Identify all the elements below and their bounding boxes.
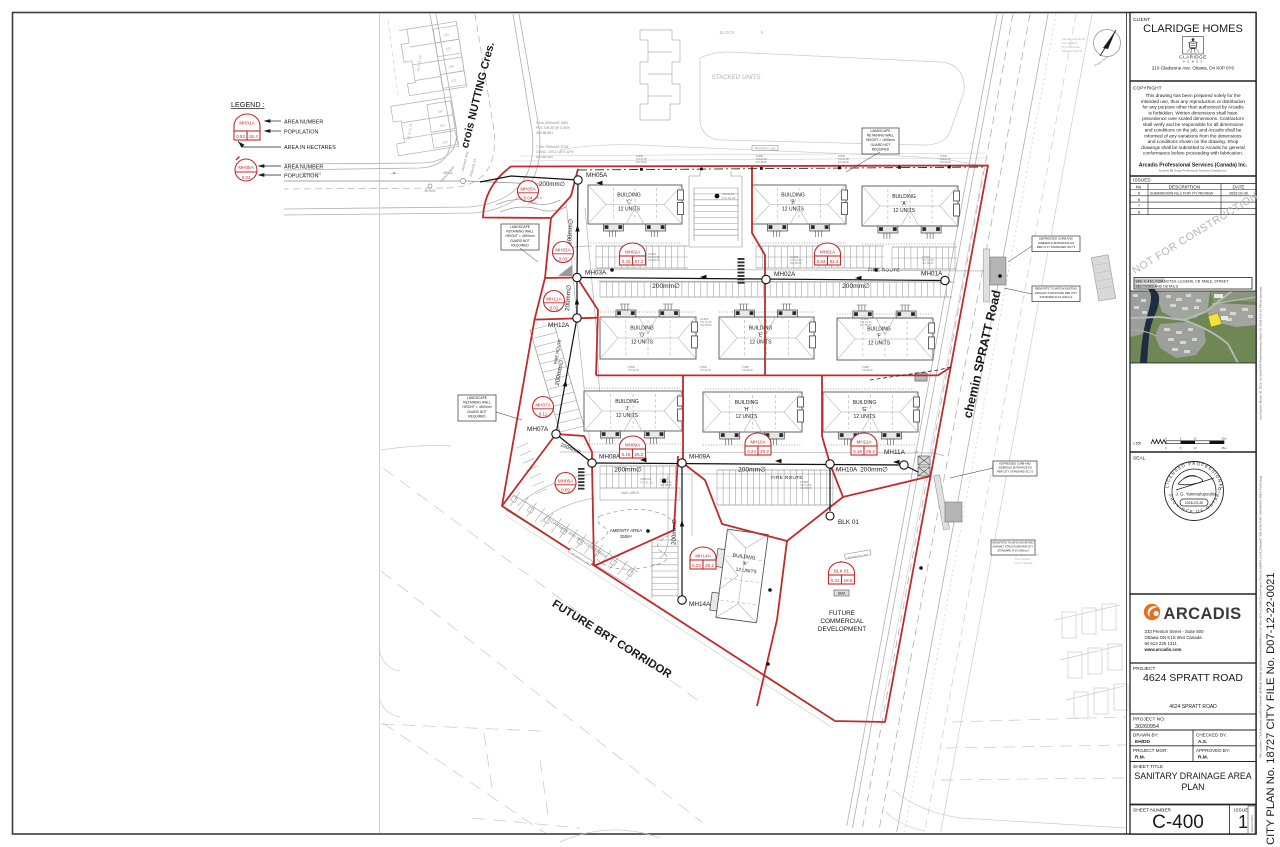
svg-text:7.4m-750mm∅ STM: 7.4m-750mm∅ STM xyxy=(536,145,568,149)
svg-text:AMENITY AREA: AMENITY AREA xyxy=(610,528,642,533)
svg-text:MH05A: MH05A xyxy=(238,165,254,170)
svg-text:informed of any variations fro: informed of any variations from the dime… xyxy=(1144,133,1242,138)
svg-text:conformance before proceeding: conformance before proceeding with fabri… xyxy=(1143,151,1243,156)
svg-text:INV 88.05: INV 88.05 xyxy=(800,486,812,490)
svg-text:'C': 'C' xyxy=(626,200,632,206)
svg-text:200mm∅: 200mm∅ xyxy=(842,283,870,290)
svg-text:12 UNITS: 12 UNITS xyxy=(631,340,654,346)
svg-text:T/G 91.15: T/G 91.15 xyxy=(640,481,653,485)
svg-text:MH11A: MH11A xyxy=(857,440,873,445)
svg-text:9.0m-200mm∅ SAN: 9.0m-200mm∅ SAN xyxy=(536,121,568,125)
svg-text:MH14A: MH14A xyxy=(689,601,711,608)
svg-text:COPYRIGHT: COPYRIGHT xyxy=(1133,86,1162,92)
svg-text:UP: UP xyxy=(914,450,918,454)
svg-text:C-400: C-400 xyxy=(1152,812,1204,833)
svg-text:200mm∅: 200mm∅ xyxy=(860,467,888,474)
svg-text:BUILDING: BUILDING xyxy=(867,327,891,333)
svg-text:250m²: 250m² xyxy=(620,534,632,539)
svg-text:AREA NUMBER: AREA NUMBER xyxy=(284,120,323,126)
svg-text:REINSTATE TO MATCH EXISTING: REINSTATE TO MATCH EXISTING xyxy=(1035,287,1077,291)
svg-text:BUILDING: BUILDING xyxy=(735,400,759,406)
svg-text:T/G 91.30: T/G 91.30 xyxy=(862,369,873,372)
svg-text:'H': 'H' xyxy=(744,407,750,413)
svg-text:0.43: 0.43 xyxy=(622,259,631,264)
svg-text:MH01A: MH01A xyxy=(921,271,943,278)
svg-text:200mm∅: 200mm∅ xyxy=(614,467,642,474)
svg-text:FIRE ROUTE: FIRE ROUTE xyxy=(868,268,900,273)
svg-text:BUILDING: BUILDING xyxy=(892,194,916,200)
svg-text:0.04: 0.04 xyxy=(524,196,533,201)
svg-text:LANDSCAPE: LANDSCAPE xyxy=(467,396,488,400)
svg-text:FIRE ROUTE: FIRE ROUTE xyxy=(771,475,803,480)
svg-text:REINSTATE TO MATCH EXISTING: REINSTATE TO MATCH EXISTING xyxy=(993,540,1034,544)
svg-text:MH07A: MH07A xyxy=(535,403,551,408)
svg-text:MH12A: MH12A xyxy=(548,322,570,329)
svg-text:10: 10 xyxy=(1194,446,1197,450)
svg-text:T/G 91.05: T/G 91.05 xyxy=(722,196,736,200)
svg-text:BUILDING: BUILDING xyxy=(749,326,773,332)
svg-text:CLARIDGE HOMES: CLARIDGE HOMES xyxy=(1143,23,1243,35)
svg-text:INV.88.891: INV.88.891 xyxy=(536,131,553,135)
svg-text:REQUIRED: REQUIRED xyxy=(872,147,890,151)
svg-text:for any purpose other than aut: for any purpose other than authorized by… xyxy=(1142,105,1244,110)
svg-text:333 Preston Street - Suite 500: 333 Preston Street - Suite 500 xyxy=(1145,629,1205,634)
svg-text:GUARD NOT: GUARD NOT xyxy=(871,143,891,147)
svg-text:153mm∅ WM: 153mm∅ WM xyxy=(300,172,321,176)
svg-text:MH09A: MH09A xyxy=(689,454,711,461)
svg-text:INV 88.05: INV 88.05 xyxy=(922,261,934,265)
svg-text:0.53: 0.53 xyxy=(236,134,245,139)
svg-text:MH10A: MH10A xyxy=(836,467,858,474)
svg-text:'A': 'A' xyxy=(901,201,906,207)
svg-text:DRAWN BY:: DRAWN BY: xyxy=(1133,733,1159,738)
svg-text:shall verify and be responsibl: shall verify and be responsible for all … xyxy=(1143,122,1244,127)
svg-text:FUTURE: FUTURE xyxy=(829,610,855,617)
svg-text:RETAINING WALL: RETAINING WALL xyxy=(867,134,895,138)
svg-text:10: 10 xyxy=(1194,436,1197,440)
svg-text:DEVELOPMENT: DEVELOPMENT xyxy=(818,626,866,633)
svg-text:CLARIDGE: CLARIDGE xyxy=(1179,55,1207,60)
svg-text:MH05A: MH05A xyxy=(586,172,608,179)
svg-text:MAIL AREA: MAIL AREA xyxy=(621,491,640,495)
svg-text:T/G 91.30: T/G 91.30 xyxy=(628,369,639,372)
svg-text:MH01A: MH01A xyxy=(820,250,836,255)
svg-text:ASPHALT STRUCTURE PER CITY: ASPHALT STRUCTURE PER CITY xyxy=(1035,291,1078,295)
svg-text:AREA IN HECTARES: AREA IN HECTARES xyxy=(284,145,336,151)
svg-text:MH08A: MH08A xyxy=(599,454,621,461)
svg-text:STACKED UNITS: STACKED UNITS xyxy=(711,74,761,81)
svg-text:12 UNITS: 12 UNITS xyxy=(616,413,639,419)
svg-text:LEGEND :: LEGEND : xyxy=(231,100,265,109)
svg-text:RETAINING WALL: RETAINING WALL xyxy=(463,401,491,405)
svg-text:BUILDING: BUILDING xyxy=(630,326,654,332)
svg-text:210 Gladstone Ave. Ottawa, On: 210 Gladstone Ave. Ottawa, On K0P 0Y6 xyxy=(1152,66,1235,71)
svg-text:PROPERTY LINE: PROPERTY LINE xyxy=(755,147,776,151)
svg-text:GUARD NOT: GUARD NOT xyxy=(510,239,530,243)
svg-text:92.4: 92.4 xyxy=(249,134,258,139)
svg-text:MH02A: MH02A xyxy=(774,271,796,278)
svg-text:MH01A: MH01A xyxy=(239,121,255,126)
svg-text:SUBMISSION No.1 FOR ITY REVIE: SUBMISSION No.1 FOR ITY REVIEW xyxy=(1150,192,1214,196)
svg-text:4624 SPRATT ROAD: 4624 SPRATT ROAD xyxy=(1169,704,1217,710)
svg-text:25.2: 25.2 xyxy=(705,563,714,568)
svg-text:MH632: MH632 xyxy=(425,189,436,193)
svg-text:12 UNITS: 12 UNITS xyxy=(750,340,773,346)
svg-text:0.16: 0.16 xyxy=(622,452,631,457)
svg-text:J. G. Yannoulopoulos: J. G. Yannoulopoulos xyxy=(1176,492,1217,497)
svg-text:REQUIRED: REQUIRED xyxy=(468,414,486,418)
svg-text:0.04: 0.04 xyxy=(242,175,251,180)
svg-text:BLK 01: BLK 01 xyxy=(834,569,850,574)
svg-text:MH05A: MH05A xyxy=(520,187,536,192)
svg-text:and conditions on the job, and: and conditions on the job, and Arcadis s… xyxy=(1145,128,1242,133)
svg-text:REQUIRED: REQUIRED xyxy=(511,243,529,247)
svg-text:MH09A: MH09A xyxy=(625,443,641,448)
svg-text:12 UNITS: 12 UNITS xyxy=(893,208,916,214)
svg-text:SECTIONS AND DETAILS: SECTIONS AND DETAILS xyxy=(1136,285,1179,289)
svg-text:SEAL: SEAL xyxy=(1133,456,1146,462)
svg-text:COMMERCIAL: COMMERCIAL xyxy=(820,618,864,625)
svg-text:SEE C-410, FOR NOTES, LEGEND,: SEE C-410, FOR NOTES, LEGEND, CB TABLE, … xyxy=(1136,279,1230,283)
svg-text:MH03A: MH03A xyxy=(585,270,607,277)
svg-text:INV 88.05: INV 88.05 xyxy=(648,258,660,262)
svg-text:25m: 25m xyxy=(1221,446,1227,450)
svg-text:12 UNITS: 12 UNITS xyxy=(618,207,641,213)
svg-text:Elevation=92.40: Elevation=92.40 xyxy=(1062,49,1083,53)
svg-text:DEPRESSED CURB AND: DEPRESSED CURB AND xyxy=(999,461,1030,465)
svg-text:R.M.: R.M. xyxy=(1135,755,1145,761)
svg-text:DESCRIPTION: DESCRIPTION xyxy=(1169,184,1200,189)
svg-text:GUARD NOT: GUARD NOT xyxy=(467,410,487,414)
svg-text:MH14A: MH14A xyxy=(695,554,711,559)
svg-text:and conditions shown on the dr: and conditions shown on the drawing. Sho… xyxy=(1148,139,1239,144)
svg-text:LANDSCAPE: LANDSCAPE xyxy=(871,129,892,133)
svg-text:SCALE CHECK: SCALE CHECK xyxy=(1251,815,1254,832)
svg-text:INV 88.05: INV 88.05 xyxy=(700,323,712,327)
svg-text:is forbidden. Written dimensio: is forbidden. Written dimensions shall h… xyxy=(1148,110,1237,115)
svg-text:PER CITY STANDARD SC7.5: PER CITY STANDARD SC7.5 xyxy=(1037,245,1076,249)
svg-text:67.2: 67.2 xyxy=(635,259,644,264)
svg-text:CHECKED BY:: CHECKED BY: xyxy=(1196,733,1227,738)
svg-text:ASPHALT STRUCTURE PER CITY: ASPHALT STRUCTURE PER CITY xyxy=(993,544,1034,548)
svg-text:PROJECT NO:: PROJECT NO: xyxy=(1133,717,1165,723)
svg-text:HEIGHT = <800mm: HEIGHT = <800mm xyxy=(866,138,895,142)
svg-text:MH32: MH32 xyxy=(443,171,452,175)
svg-text:INV 88.05: INV 88.05 xyxy=(660,483,672,487)
svg-text:INV 88.90: INV 88.90 xyxy=(756,161,767,164)
svg-text:SANITARY DRAINAGE AREA: SANITARY DRAINAGE AREA xyxy=(1134,771,1251,781)
svg-text:POPULATION: POPULATION xyxy=(284,130,318,136)
svg-text:MH11A: MH11A xyxy=(884,449,906,456)
svg-text:HEIGHT = <800mm: HEIGHT = <800mm xyxy=(505,234,534,238)
svg-text:T/G 91.30: T/G 91.30 xyxy=(742,369,753,372)
svg-text:18.6: 18.6 xyxy=(844,578,853,583)
svg-text:12 UNITS: 12 UNITS xyxy=(854,414,877,420)
svg-text:200mm∅: 200mm∅ xyxy=(652,283,680,290)
svg-text:H O M E S: H O M E S xyxy=(1183,61,1203,64)
svg-text:formerly IBI Group Professiona: formerly IBI Group Professional Services… xyxy=(1159,169,1227,173)
svg-text:EH/DD: EH/DD xyxy=(1135,739,1150,745)
svg-text:BUILDING: BUILDING xyxy=(781,193,805,199)
svg-text:MH03A: MH03A xyxy=(555,248,571,253)
svg-text:200mm∅: 200mm∅ xyxy=(738,467,766,474)
svg-text:25m: 25m xyxy=(1221,436,1227,440)
svg-text:'F': 'F' xyxy=(877,334,882,340)
svg-text:RETAINING WALL: RETAINING WALL xyxy=(506,230,534,234)
svg-text:200mm∅: 200mm∅ xyxy=(539,181,565,188)
svg-text:0.03: 0.03 xyxy=(559,257,568,262)
svg-text:tel 613 225 1311: tel 613 225 1311 xyxy=(1145,641,1178,646)
svg-text:'D': 'D' xyxy=(639,333,645,339)
svg-text:4624 SPRATT ROAD: 4624 SPRATT ROAD xyxy=(1143,672,1243,684)
svg-text:BLOCK: BLOCK xyxy=(720,30,735,35)
svg-text:12 UNITS: 12 UNITS xyxy=(736,414,759,420)
svg-text:0.18: 0.18 xyxy=(853,449,862,454)
svg-text:INV 88.90: INV 88.90 xyxy=(838,161,849,164)
svg-text:intended use, thus any reprodu: intended use, thus any reproduction or d… xyxy=(1141,99,1245,104)
svg-text:www.arcadis.com: www.arcadis.com xyxy=(1144,647,1182,652)
svg-text:25.2: 25.2 xyxy=(866,449,875,454)
svg-text:Ottawa ON K1S 5N4 Canada: Ottawa ON K1S 5N4 Canada xyxy=(1145,635,1203,640)
svg-text:ARCADIS: ARCADIS xyxy=(1164,605,1242,623)
svg-text:BLK 01: BLK 01 xyxy=(838,519,859,526)
svg-text:—▶—: —▶— xyxy=(390,171,400,175)
svg-text:BUILDING: BUILDING xyxy=(615,399,639,405)
svg-text:200mm∅: 200mm∅ xyxy=(671,519,679,545)
svg-text:SHEET TITLE: SHEET TITLE xyxy=(1133,764,1163,770)
svg-text:MH10A: MH10A xyxy=(750,440,766,445)
svg-text:PLAN: PLAN xyxy=(1182,782,1205,792)
svg-text:STANDARD R-10 (340mm): STANDARD R-10 (340mm) xyxy=(1040,295,1073,299)
svg-text:A.S.: A.S. xyxy=(1198,739,1207,745)
svg-text:DMA: DMA xyxy=(838,592,846,596)
svg-text:MH12A: MH12A xyxy=(546,297,562,302)
svg-text:'J': 'J' xyxy=(625,406,629,412)
svg-text:0.23: 0.23 xyxy=(692,563,701,568)
svg-text:0.02: 0.02 xyxy=(550,306,559,311)
svg-text:STANDARD R-10 (340mm): STANDARD R-10 (340mm) xyxy=(997,548,1029,552)
svg-text:INV 88.90: INV 88.90 xyxy=(940,161,951,164)
svg-text:30260954: 30260954 xyxy=(1135,724,1159,730)
svg-text:0.53: 0.53 xyxy=(817,259,826,264)
svg-text:T/G 91.30: T/G 91.30 xyxy=(700,369,711,372)
svg-text:DATE: DATE xyxy=(1233,184,1245,189)
svg-text:PVC DR-35 @ 0.30%: PVC DR-35 @ 0.30% xyxy=(536,126,570,130)
svg-text:MH07A: MH07A xyxy=(527,426,549,433)
svg-text:precedence over scaled dimensi: precedence over scaled dimensions. Contr… xyxy=(1142,116,1244,121)
svg-text:'G': 'G' xyxy=(862,407,868,413)
svg-text:SIDEWALK ENTRANCE AS: SIDEWALK ENTRANCE AS xyxy=(998,465,1032,469)
svg-text:PROJECT MGR:: PROJECT MGR: xyxy=(1133,748,1168,753)
svg-text:CONC. 100-D @ 0.12%: CONC. 100-D @ 0.12% xyxy=(536,150,573,154)
svg-text:R.M.: R.M. xyxy=(1198,755,1208,761)
svg-text:No.: No. xyxy=(1136,184,1143,189)
svg-text:2026-03-30: 2026-03-30 xyxy=(1185,501,1203,505)
svg-text:1:500: 1:500 xyxy=(1133,442,1141,446)
svg-text:'K': 'K' xyxy=(742,561,748,568)
svg-text:INV 88.90: INV 88.90 xyxy=(636,161,647,164)
svg-text:1: 1 xyxy=(1238,812,1248,832)
svg-text:This drawing has been prepared: This drawing has been prepared solely fo… xyxy=(1145,93,1241,98)
svg-text:CITY PLAN No. 18727 CITY FIL: CITY PLAN No. 18727 CITY FILE No. D07-12… xyxy=(1265,572,1277,845)
svg-text:ISSUES: ISSUES xyxy=(1133,178,1151,184)
svg-text:drawings shall be submitted to: drawings shall be submitted to Arcadis f… xyxy=(1141,145,1244,150)
svg-text:INV 88.05: INV 88.05 xyxy=(790,261,802,265)
svg-text:'E': 'E' xyxy=(758,333,763,339)
svg-text:Top of Spindle: Top of Spindle xyxy=(1015,561,1033,565)
svg-text:MH02A: MH02A xyxy=(625,250,641,255)
svg-text:0.24: 0.24 xyxy=(747,449,756,454)
svg-text:0.11: 0.11 xyxy=(539,412,548,417)
svg-text:BUILDING: BUILDING xyxy=(617,193,641,199)
svg-text:92.4: 92.4 xyxy=(830,259,839,264)
svg-text:0.31: 0.31 xyxy=(831,578,840,583)
svg-text:'B': 'B' xyxy=(790,200,795,206)
svg-text:PER CITY STANDARD SC7.5: PER CITY STANDARD SC7.5 xyxy=(997,469,1033,473)
svg-text:File Location: C:\DA\ArcadisLo: File Location: C:\DA\ArcadisLocal\05c79b… xyxy=(1259,476,1263,758)
svg-text:MH06A: MH06A xyxy=(558,479,574,484)
svg-text:LANDSCAPE: LANDSCAPE xyxy=(510,225,531,229)
svg-text:25.2: 25.2 xyxy=(635,452,644,457)
svg-text:APPROVED BY:: APPROVED BY: xyxy=(1196,748,1230,753)
svg-text:12 UNITS: 12 UNITS xyxy=(782,207,805,213)
svg-text:12 UNITS: 12 UNITS xyxy=(868,341,891,347)
svg-text:0.09: 0.09 xyxy=(561,488,570,493)
svg-text:INV 88.05: INV 88.05 xyxy=(860,323,872,327)
svg-text:25.2: 25.2 xyxy=(760,449,769,454)
svg-text:HEIGHT = <800mm: HEIGHT = <800mm xyxy=(462,405,491,409)
svg-text:BUILDING: BUILDING xyxy=(853,400,877,406)
svg-text:Last Saved: March 30, 2026, by: Last Saved: March 30, 2026, by dave5754 … xyxy=(1259,286,1263,420)
